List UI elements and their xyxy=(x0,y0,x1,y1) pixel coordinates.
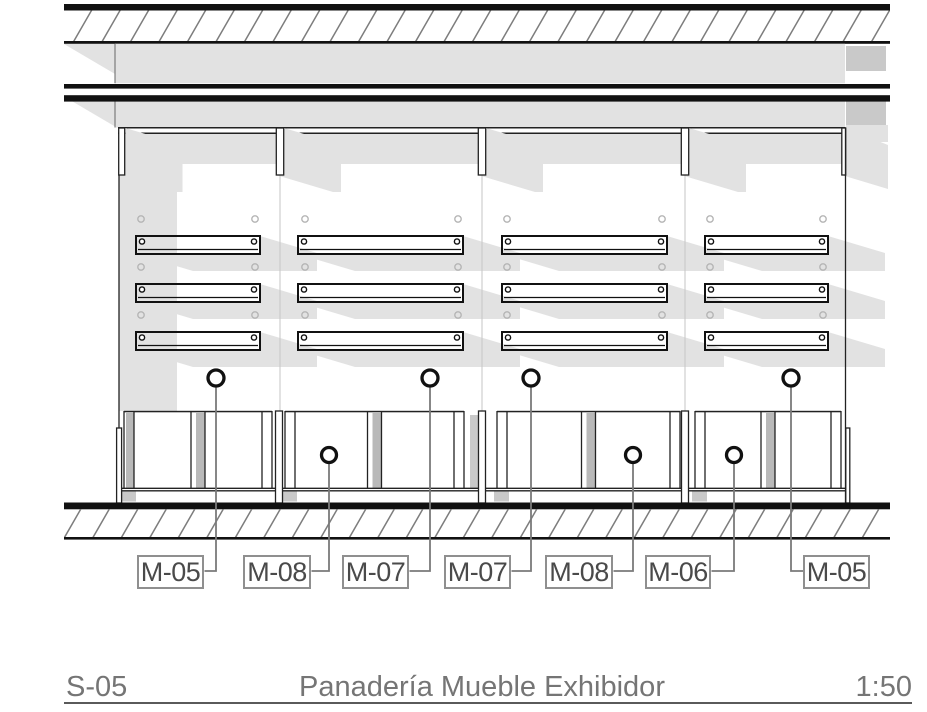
elevation-drawing xyxy=(0,0,927,650)
panel-joints xyxy=(280,175,685,411)
drawing-canvas: M-05 M-08 M-07 M-07 M-08 M-06 M-05 S-05 … xyxy=(0,0,927,712)
floor-slab xyxy=(64,503,890,540)
callout-label-m07-right: M-07 xyxy=(444,555,511,589)
ceiling-slab xyxy=(64,4,890,44)
door-knob xyxy=(626,448,641,463)
callout-label-m08-right: M-08 xyxy=(545,555,613,589)
callout-circles xyxy=(208,370,799,463)
drawing-title: Panadería Mueble Exhibidor xyxy=(37,672,927,702)
plinth-shadows xyxy=(121,492,707,502)
drawing-scale: 1:50 xyxy=(856,672,912,702)
ceiling-hatch xyxy=(64,11,890,42)
cabinet-side-shadows xyxy=(126,412,775,488)
wall-shadows xyxy=(118,128,888,411)
callout-label-m07-left: M-07 xyxy=(342,555,409,589)
callout-label-m05-right: M-05 xyxy=(803,555,870,589)
floor-hatch xyxy=(64,509,890,537)
callout-label-m06: M-06 xyxy=(645,555,711,589)
title-underline xyxy=(64,702,912,704)
callout-label-m05-left: M-05 xyxy=(137,555,204,589)
callout-label-m08-left: M-08 xyxy=(243,555,311,589)
door-knob xyxy=(322,448,337,463)
door-knob xyxy=(727,448,742,463)
